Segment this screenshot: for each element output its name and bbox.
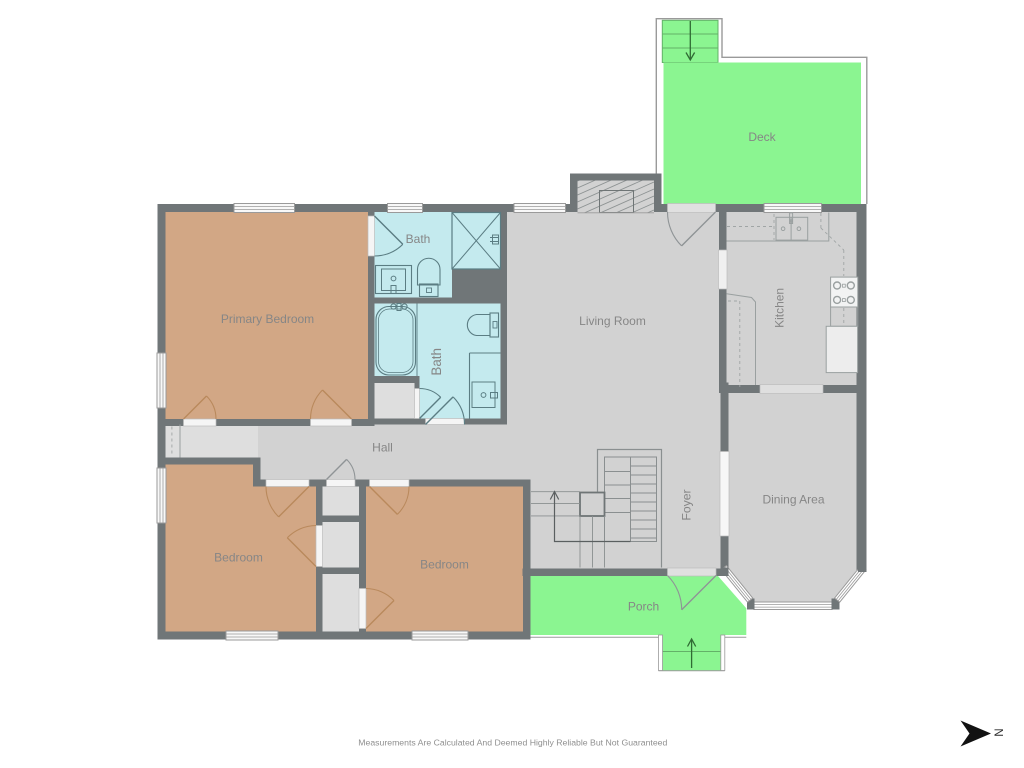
svg-text:Porch: Porch (628, 600, 659, 614)
svg-text:Foyer: Foyer (680, 489, 694, 520)
svg-text:Living Room: Living Room (579, 314, 646, 328)
svg-text:Bath: Bath (429, 348, 444, 376)
svg-text:Bath: Bath (406, 232, 431, 246)
svg-text:Bedroom: Bedroom (420, 557, 469, 571)
svg-text:Bedroom: Bedroom (214, 550, 263, 564)
svg-text:Primary Bedroom: Primary Bedroom (221, 312, 314, 326)
svg-text:Measurements Are Calculated An: Measurements Are Calculated And Deemed H… (358, 737, 667, 747)
svg-text:Dining Area: Dining Area (762, 493, 824, 507)
svg-text:N: N (992, 728, 1004, 736)
svg-text:Deck: Deck (748, 130, 776, 144)
svg-text:Kitchen: Kitchen (772, 288, 786, 328)
svg-text:Hall: Hall (372, 441, 393, 455)
